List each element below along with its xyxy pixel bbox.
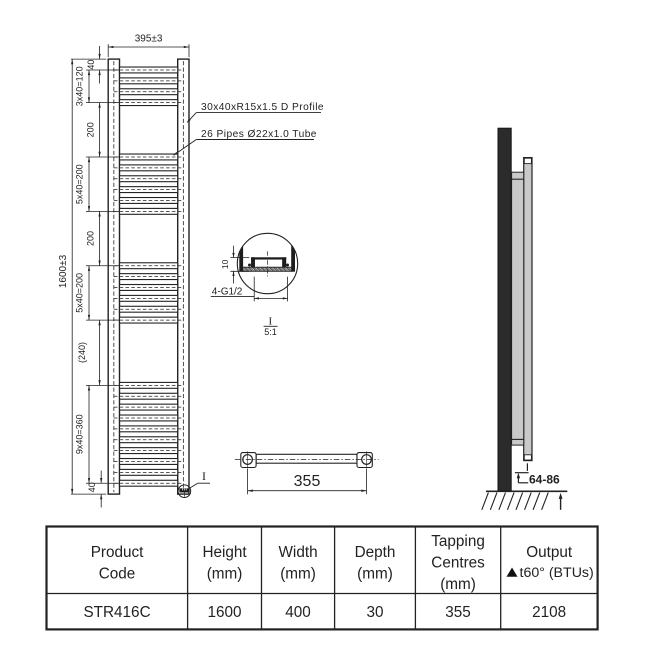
svg-text:Tapping: Tapping [431,533,485,550]
svg-text:355: 355 [294,473,321,490]
svg-text:Output: Output [526,544,573,561]
svg-text:40: 40 [87,482,97,492]
svg-text:400: 400 [285,604,311,621]
svg-text:STR416C: STR416C [83,604,150,621]
svg-text:1600: 1600 [208,604,242,621]
svg-text:Depth: Depth [355,544,396,561]
svg-text:Centres: Centres [431,555,485,572]
svg-text:2108: 2108 [532,604,566,621]
svg-text:30x40xR15x1.5 D Profile: 30x40xR15x1.5 D Profile [201,102,324,113]
svg-text:10: 10 [220,259,230,269]
svg-text:200: 200 [86,122,96,137]
svg-text:Width: Width [278,544,317,561]
svg-text:I: I [202,469,206,483]
svg-text:(mm): (mm) [440,576,476,593]
svg-text:40: 40 [86,60,96,70]
svg-text:(mm): (mm) [280,566,316,583]
svg-text:9x40=360: 9x40=360 [75,414,85,454]
svg-text:Product: Product [91,544,144,561]
svg-text:395±3: 395±3 [135,34,163,45]
svg-text:(240): (240) [77,342,87,363]
svg-text:Code: Code [99,566,136,583]
svg-text:5:1: 5:1 [264,327,277,337]
svg-text:5x40=200: 5x40=200 [75,273,85,313]
svg-text:I: I [268,315,272,327]
svg-text:64-86: 64-86 [529,473,560,487]
svg-text:355: 355 [445,604,471,621]
svg-text:5x40=200: 5x40=200 [75,164,85,204]
svg-text:3x40=120: 3x40=120 [75,66,85,106]
svg-text:30: 30 [366,604,383,621]
svg-text:Height: Height [202,544,247,561]
svg-text:200: 200 [86,231,96,246]
svg-text:(mm): (mm) [207,566,243,583]
svg-text:26 Pipes Ø22x1.0 Tube: 26 Pipes Ø22x1.0 Tube [201,129,317,140]
svg-text:1600±3: 1600±3 [58,254,69,288]
svg-text:(mm): (mm) [357,566,393,583]
svg-text:t60° (BTUs): t60° (BTUs) [520,565,594,581]
